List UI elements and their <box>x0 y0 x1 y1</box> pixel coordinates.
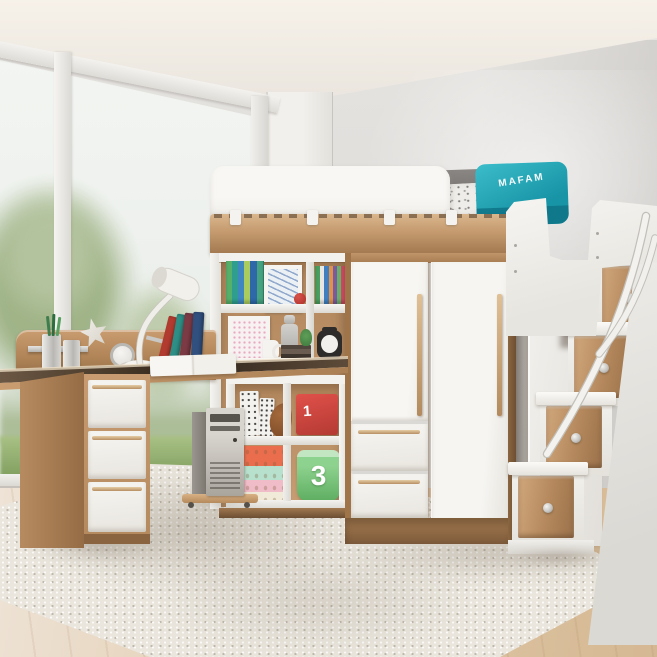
computer-side <box>192 412 206 494</box>
caster-wheel <box>244 502 250 508</box>
vent-grille <box>210 462 240 490</box>
drawer-handle <box>92 385 142 389</box>
red-storage-box: 1 <box>296 394 338 435</box>
cube-divider <box>235 436 339 445</box>
open-book <box>150 354 237 377</box>
bookshelf-base <box>219 508 348 518</box>
small-plant <box>300 329 312 346</box>
red-box-label: 1 <box>302 403 312 421</box>
drive-bay <box>210 426 240 431</box>
handrail-tube <box>547 216 646 454</box>
lamp-arm <box>139 296 170 364</box>
alarm-clock <box>317 330 342 359</box>
kids-room-scene: MAFAM 1 3 <box>0 0 657 657</box>
cushion-text: MAFAM <box>479 169 564 193</box>
green-bucket: 3 <box>297 450 340 502</box>
drawer-handle <box>92 436 142 440</box>
lamp-head <box>148 264 202 305</box>
book-stack <box>281 345 311 359</box>
rail-clip <box>230 210 241 225</box>
drive-bay <box>210 414 240 422</box>
bed-guard-rail-panel <box>210 166 450 218</box>
wardrobe-base <box>345 518 513 544</box>
book-row <box>226 261 264 304</box>
wardrobe-handle <box>417 294 422 416</box>
bucket-number: 3 <box>311 460 327 492</box>
rail-clip <box>307 210 318 225</box>
wardrobe-handle <box>497 294 502 416</box>
handrail-graphic <box>505 192 657 482</box>
cabinet-side <box>20 372 84 548</box>
power-button <box>233 438 237 442</box>
drawer-handle <box>92 487 142 491</box>
rail-clip <box>446 210 457 225</box>
pencil-cup <box>42 334 61 370</box>
toy-books <box>315 266 345 304</box>
rail-clip <box>384 210 395 225</box>
caster-wheel <box>188 502 194 508</box>
drawer-knob <box>543 503 553 513</box>
drawer-handle <box>358 480 420 484</box>
white-mug <box>263 340 279 359</box>
bed-wood-fascia <box>210 214 542 254</box>
pencil-cup <box>63 340 80 370</box>
handrail-shadow <box>547 216 646 454</box>
drawer-handle <box>358 430 420 434</box>
stairs-handrail <box>505 192 657 482</box>
bookshelf-shelf <box>221 304 345 313</box>
cabinet-base <box>84 534 150 544</box>
